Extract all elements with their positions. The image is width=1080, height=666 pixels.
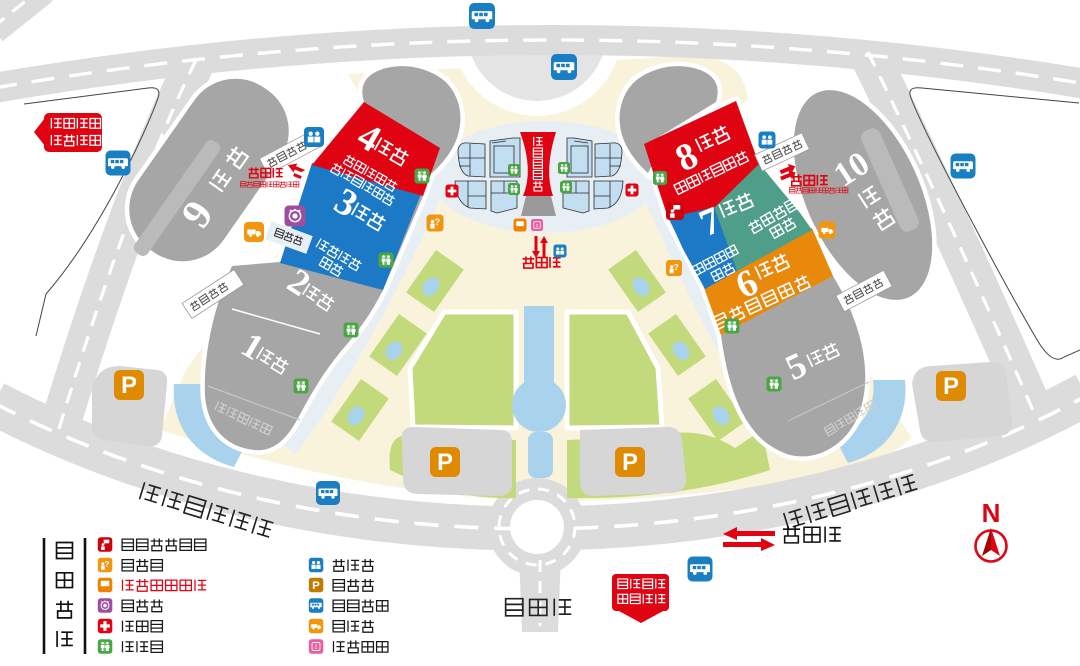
- svg-text:P: P: [121, 372, 137, 399]
- svg-text:N: N: [982, 498, 1001, 528]
- svg-text:?: ?: [673, 262, 678, 272]
- svg-text:?: ?: [105, 560, 110, 569]
- svg-text:P: P: [437, 449, 453, 476]
- svg-text:2: 2: [314, 645, 317, 651]
- svg-text:P: P: [622, 449, 638, 476]
- svg-text:P: P: [943, 373, 959, 400]
- svg-text:P: P: [312, 580, 320, 592]
- svg-text:?: ?: [434, 217, 440, 227]
